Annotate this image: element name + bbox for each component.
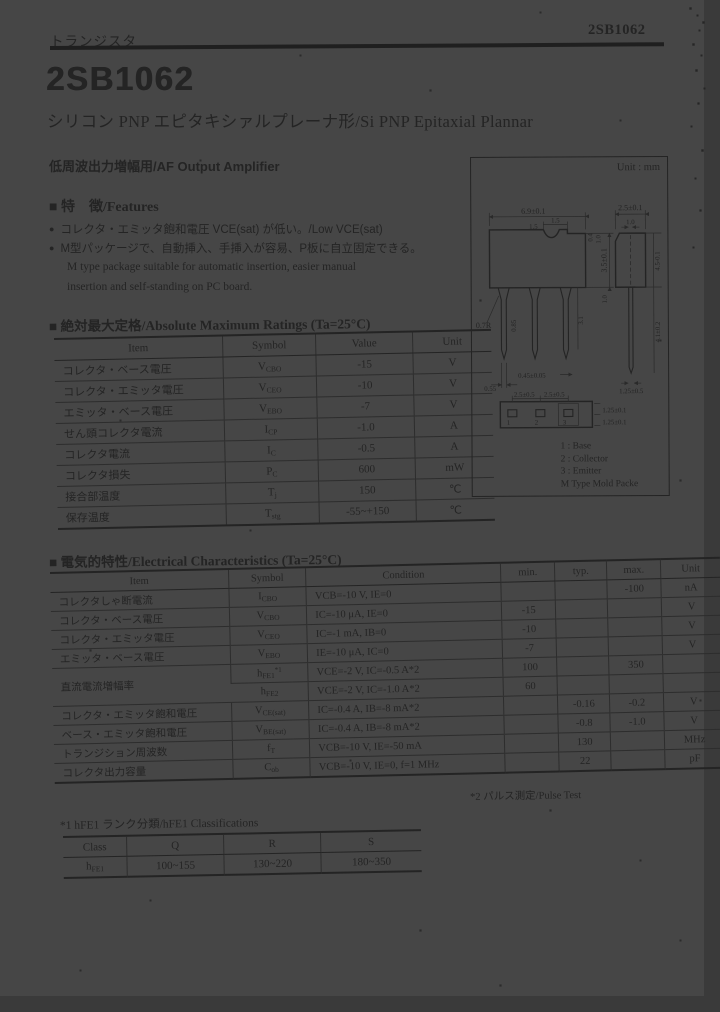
cell-max bbox=[608, 617, 662, 637]
page-subtitle: シリコン PNP エピタキシァルプレーナ形/Si PNP Epitaxial P… bbox=[47, 108, 533, 132]
cell-min: -15 bbox=[502, 600, 556, 620]
cell-symbol: fT bbox=[232, 739, 310, 760]
cell-unit bbox=[663, 653, 720, 673]
cell-symbol: hFE2 bbox=[231, 682, 309, 703]
abs-max-table: Item Symbol Value Unit コレクタ・ベース電圧VCBO-15… bbox=[54, 329, 495, 530]
lead-3 bbox=[560, 287, 571, 358]
feature-item: ●M型パッケージで、自動挿入、手挿入が容易、P板に自立固定できる。 bbox=[49, 240, 422, 256]
cell-symbol: IC bbox=[225, 439, 318, 462]
side-view-body bbox=[615, 233, 645, 287]
cell-min: -10 bbox=[502, 619, 556, 639]
dim-side-lead-width: 1.0 bbox=[626, 219, 635, 226]
col-header: Symbol bbox=[228, 567, 306, 588]
cell-max bbox=[611, 750, 665, 771]
cell-unit: nA bbox=[661, 577, 720, 597]
feature-text: コレクタ・エミッタ飽和電圧 VCE(sat) が低い。/Low VCE(sat) bbox=[60, 224, 382, 236]
cell-typ: -0.8 bbox=[558, 713, 611, 733]
cell-range-r: 130~220 bbox=[224, 853, 321, 875]
cell-value: -15 bbox=[316, 353, 413, 376]
legend-line: M Type Mold Packe bbox=[561, 478, 639, 491]
cell-typ bbox=[555, 580, 608, 600]
col-header: Value bbox=[315, 331, 412, 355]
cell-symbol: PC bbox=[225, 460, 318, 483]
pin-legend: 1 : Base 2 : Collector 3 : Emitter M Typ… bbox=[560, 440, 638, 490]
pulse-test-footnote: *2 パルス測定/Pulse Test bbox=[470, 787, 581, 804]
cell-value: -1.0 bbox=[317, 416, 414, 439]
cell-item: 直流電流増幅率 bbox=[52, 664, 231, 706]
cell-value: -0.5 bbox=[318, 437, 415, 460]
cell-max: -100 bbox=[607, 579, 661, 599]
feature-text: M型パッケージで、自動挿入、手挿入が容易、P板に自立固定できる。 bbox=[60, 243, 421, 255]
dim-notch-a: 1.5 bbox=[551, 218, 560, 225]
cell-range-s: 180~350 bbox=[321, 851, 422, 873]
col-header: Q bbox=[127, 834, 224, 856]
classification-heading: *1 hFE1 ランク分類/hFE1 Classifications bbox=[60, 814, 259, 833]
pin-number-1: 1 bbox=[507, 420, 510, 427]
col-header: Class bbox=[63, 836, 127, 858]
cell-typ: 130 bbox=[558, 732, 611, 752]
feature-note-line: M type package suitable for automatic in… bbox=[67, 261, 356, 273]
feature-item: ●コレクタ・エミッタ飽和電圧 VCE(sat) が低い。/Low VCE(sat… bbox=[49, 221, 383, 237]
cell-max bbox=[608, 636, 662, 656]
dim-side-lead-length: 4.1±0.2 bbox=[655, 321, 662, 342]
legend-line: 2 : Collector bbox=[561, 453, 639, 466]
bullet-icon: ● bbox=[49, 224, 54, 234]
features-heading: ■ 特 徴/Features bbox=[49, 196, 159, 216]
cell-max bbox=[608, 598, 662, 618]
bullet-icon: ● bbox=[49, 243, 54, 253]
cell-min: -7 bbox=[502, 638, 556, 658]
dim-body-width: 6.9±0.1 bbox=[521, 207, 545, 216]
col-header: S bbox=[320, 830, 421, 852]
dim-lead-length: 3.1 bbox=[578, 316, 585, 325]
scan-edge-right bbox=[704, 0, 720, 1012]
datasheet-page: トランジスタ 2SB1062 2SB1062 シリコン PNP エピタキシァルプ… bbox=[0, 0, 720, 1012]
dim-body-height: 3.5±0.1 bbox=[599, 248, 608, 272]
cell-symbol: VEBO bbox=[230, 644, 308, 665]
pin3-highlight-box bbox=[558, 403, 578, 425]
dim-shoulder: 1.0 bbox=[602, 294, 609, 303]
side-view-lead bbox=[629, 287, 633, 373]
cell-min bbox=[505, 733, 559, 753]
cell-item: 保存温度 bbox=[58, 504, 227, 529]
classification-table: Class Q R S hFE1 100~155 130~220 180~350 bbox=[63, 829, 422, 879]
cell-typ bbox=[555, 599, 608, 619]
cell-symbol: Cob bbox=[233, 758, 311, 779]
cell-unit: V bbox=[661, 596, 720, 616]
col-header: Unit bbox=[661, 558, 720, 579]
cell-symbol: VEBO bbox=[224, 397, 317, 420]
col-header: Symbol bbox=[222, 334, 315, 357]
page-title: 2SB1062 bbox=[46, 60, 194, 98]
lead-1 bbox=[498, 288, 509, 359]
dim-pad-offset-a: 1.25±0.1 bbox=[602, 407, 626, 414]
cell-typ: 22 bbox=[559, 751, 612, 772]
cell-symbol: Tj bbox=[226, 481, 319, 504]
dim-lead-tip: 0.45±0.05 bbox=[518, 373, 546, 380]
cell-unit: V bbox=[664, 710, 720, 730]
cell-symbol: VCBO bbox=[223, 355, 316, 378]
col-header: min. bbox=[501, 562, 555, 583]
cell-item: コレクタ出力容量 bbox=[54, 759, 233, 783]
dim-lead-width: 0.85 bbox=[511, 319, 518, 332]
cell-range-q: 100~155 bbox=[127, 854, 224, 876]
dim-flare-radius: 0.7R bbox=[476, 321, 492, 330]
package-outline-box: Unit : mm 6.9±0.1 1.5 1.5 0.4 1.0 bbox=[470, 156, 670, 497]
cell-unit: V bbox=[662, 634, 720, 654]
cell-value: -7 bbox=[317, 395, 414, 418]
application-label: 低周波出力増幅用/AF Output Amplifier bbox=[49, 156, 280, 175]
cell-unit: ℃ bbox=[416, 498, 495, 521]
dim-step-b: 1.0 bbox=[595, 234, 602, 243]
cell-unit: V bbox=[662, 615, 720, 635]
dim-step-a: 0.4 bbox=[587, 233, 594, 242]
cell-max bbox=[611, 731, 665, 751]
legend-line: 3 : Emitter bbox=[561, 465, 639, 478]
pin-number-2: 2 bbox=[535, 420, 539, 427]
lead-2 bbox=[529, 288, 540, 359]
cell-max: 350 bbox=[609, 655, 663, 675]
col-header: max. bbox=[607, 559, 661, 580]
scan-noise bbox=[0, 0, 1, 1]
unit-label: Unit : mm bbox=[617, 162, 660, 173]
cell-min bbox=[505, 752, 559, 773]
cell-max: -0.2 bbox=[610, 693, 664, 713]
cell-symbol: ICBO bbox=[229, 587, 307, 608]
dim-lead-width2: 0.55 bbox=[484, 386, 497, 393]
dim-side-width: 2.5±0.1 bbox=[618, 203, 642, 212]
header-rule bbox=[50, 42, 664, 50]
cell-symbol: VBE(sat) bbox=[232, 720, 310, 741]
scan-edge-bottom bbox=[0, 996, 720, 1012]
feature-note-line: insertion and self-standing on PC board. bbox=[67, 281, 252, 293]
dim-side-height: 4.5-0.1 bbox=[654, 251, 661, 270]
package-drawing: 6.9±0.1 1.5 1.5 0.4 1.0 3.5±0.1 1.0 0.7R… bbox=[473, 177, 666, 440]
cell-symbol: VCE(sat) bbox=[231, 701, 309, 722]
pad-3 bbox=[564, 409, 573, 416]
cell-min bbox=[504, 695, 558, 715]
cell-typ bbox=[556, 637, 609, 657]
cell-symbol: hFE1*1 bbox=[230, 663, 308, 684]
cell-typ: -0.16 bbox=[558, 694, 611, 714]
cell-symbol: VCEO bbox=[230, 625, 308, 646]
dim-notch-b: 1.5 bbox=[529, 224, 538, 231]
cell-min: 100 bbox=[503, 657, 557, 677]
cell-symbol: ICP bbox=[224, 418, 317, 441]
cell-min: 60 bbox=[503, 676, 557, 696]
cell-typ bbox=[557, 675, 610, 695]
dim-pad-pitch-a: 2.5±0.5 bbox=[514, 392, 535, 399]
elec-table: Item Symbol Condition min. typ. max. Uni… bbox=[50, 557, 720, 784]
cell-min bbox=[501, 581, 555, 601]
dim-pad-pitch-b: 2.5±0.5 bbox=[544, 392, 565, 399]
col-header: R bbox=[223, 832, 320, 854]
cell-condition: VCB=-10 V, IE=0, f=1 MHz bbox=[310, 753, 505, 777]
cell-max: -1.0 bbox=[610, 712, 664, 732]
cell-symbol: VCEO bbox=[223, 376, 316, 399]
cell-unit: V bbox=[664, 691, 720, 711]
cell-min bbox=[504, 714, 558, 734]
legend-line: 1 : Base bbox=[560, 440, 638, 453]
cell-unit bbox=[663, 672, 720, 692]
pad-1 bbox=[508, 410, 517, 417]
cell-value: 150 bbox=[319, 479, 416, 502]
cell-symbol: VCBO bbox=[229, 606, 307, 627]
cell-typ bbox=[556, 618, 609, 638]
cell-unit: MHz bbox=[664, 729, 720, 749]
col-header: typ. bbox=[555, 560, 608, 581]
dim-pad-offset-b: 1.25±0.1 bbox=[602, 419, 626, 426]
cell-unit: pF bbox=[665, 748, 720, 769]
cell-max bbox=[609, 674, 663, 694]
cell-row-label: hFE1 bbox=[63, 856, 127, 878]
part-number-header: 2SB1062 bbox=[588, 22, 646, 39]
pin-number-3: 3 bbox=[563, 419, 567, 426]
cell-symbol: Tstg bbox=[226, 502, 319, 525]
cell-value: 600 bbox=[318, 458, 415, 481]
cell-value: -55~+150 bbox=[319, 500, 416, 524]
front-view-body bbox=[489, 229, 585, 288]
cell-typ bbox=[557, 656, 610, 676]
dim-side-pitch: 1.25±0.5 bbox=[619, 388, 644, 395]
pad-2 bbox=[536, 410, 545, 417]
cell-value: -10 bbox=[316, 374, 413, 397]
